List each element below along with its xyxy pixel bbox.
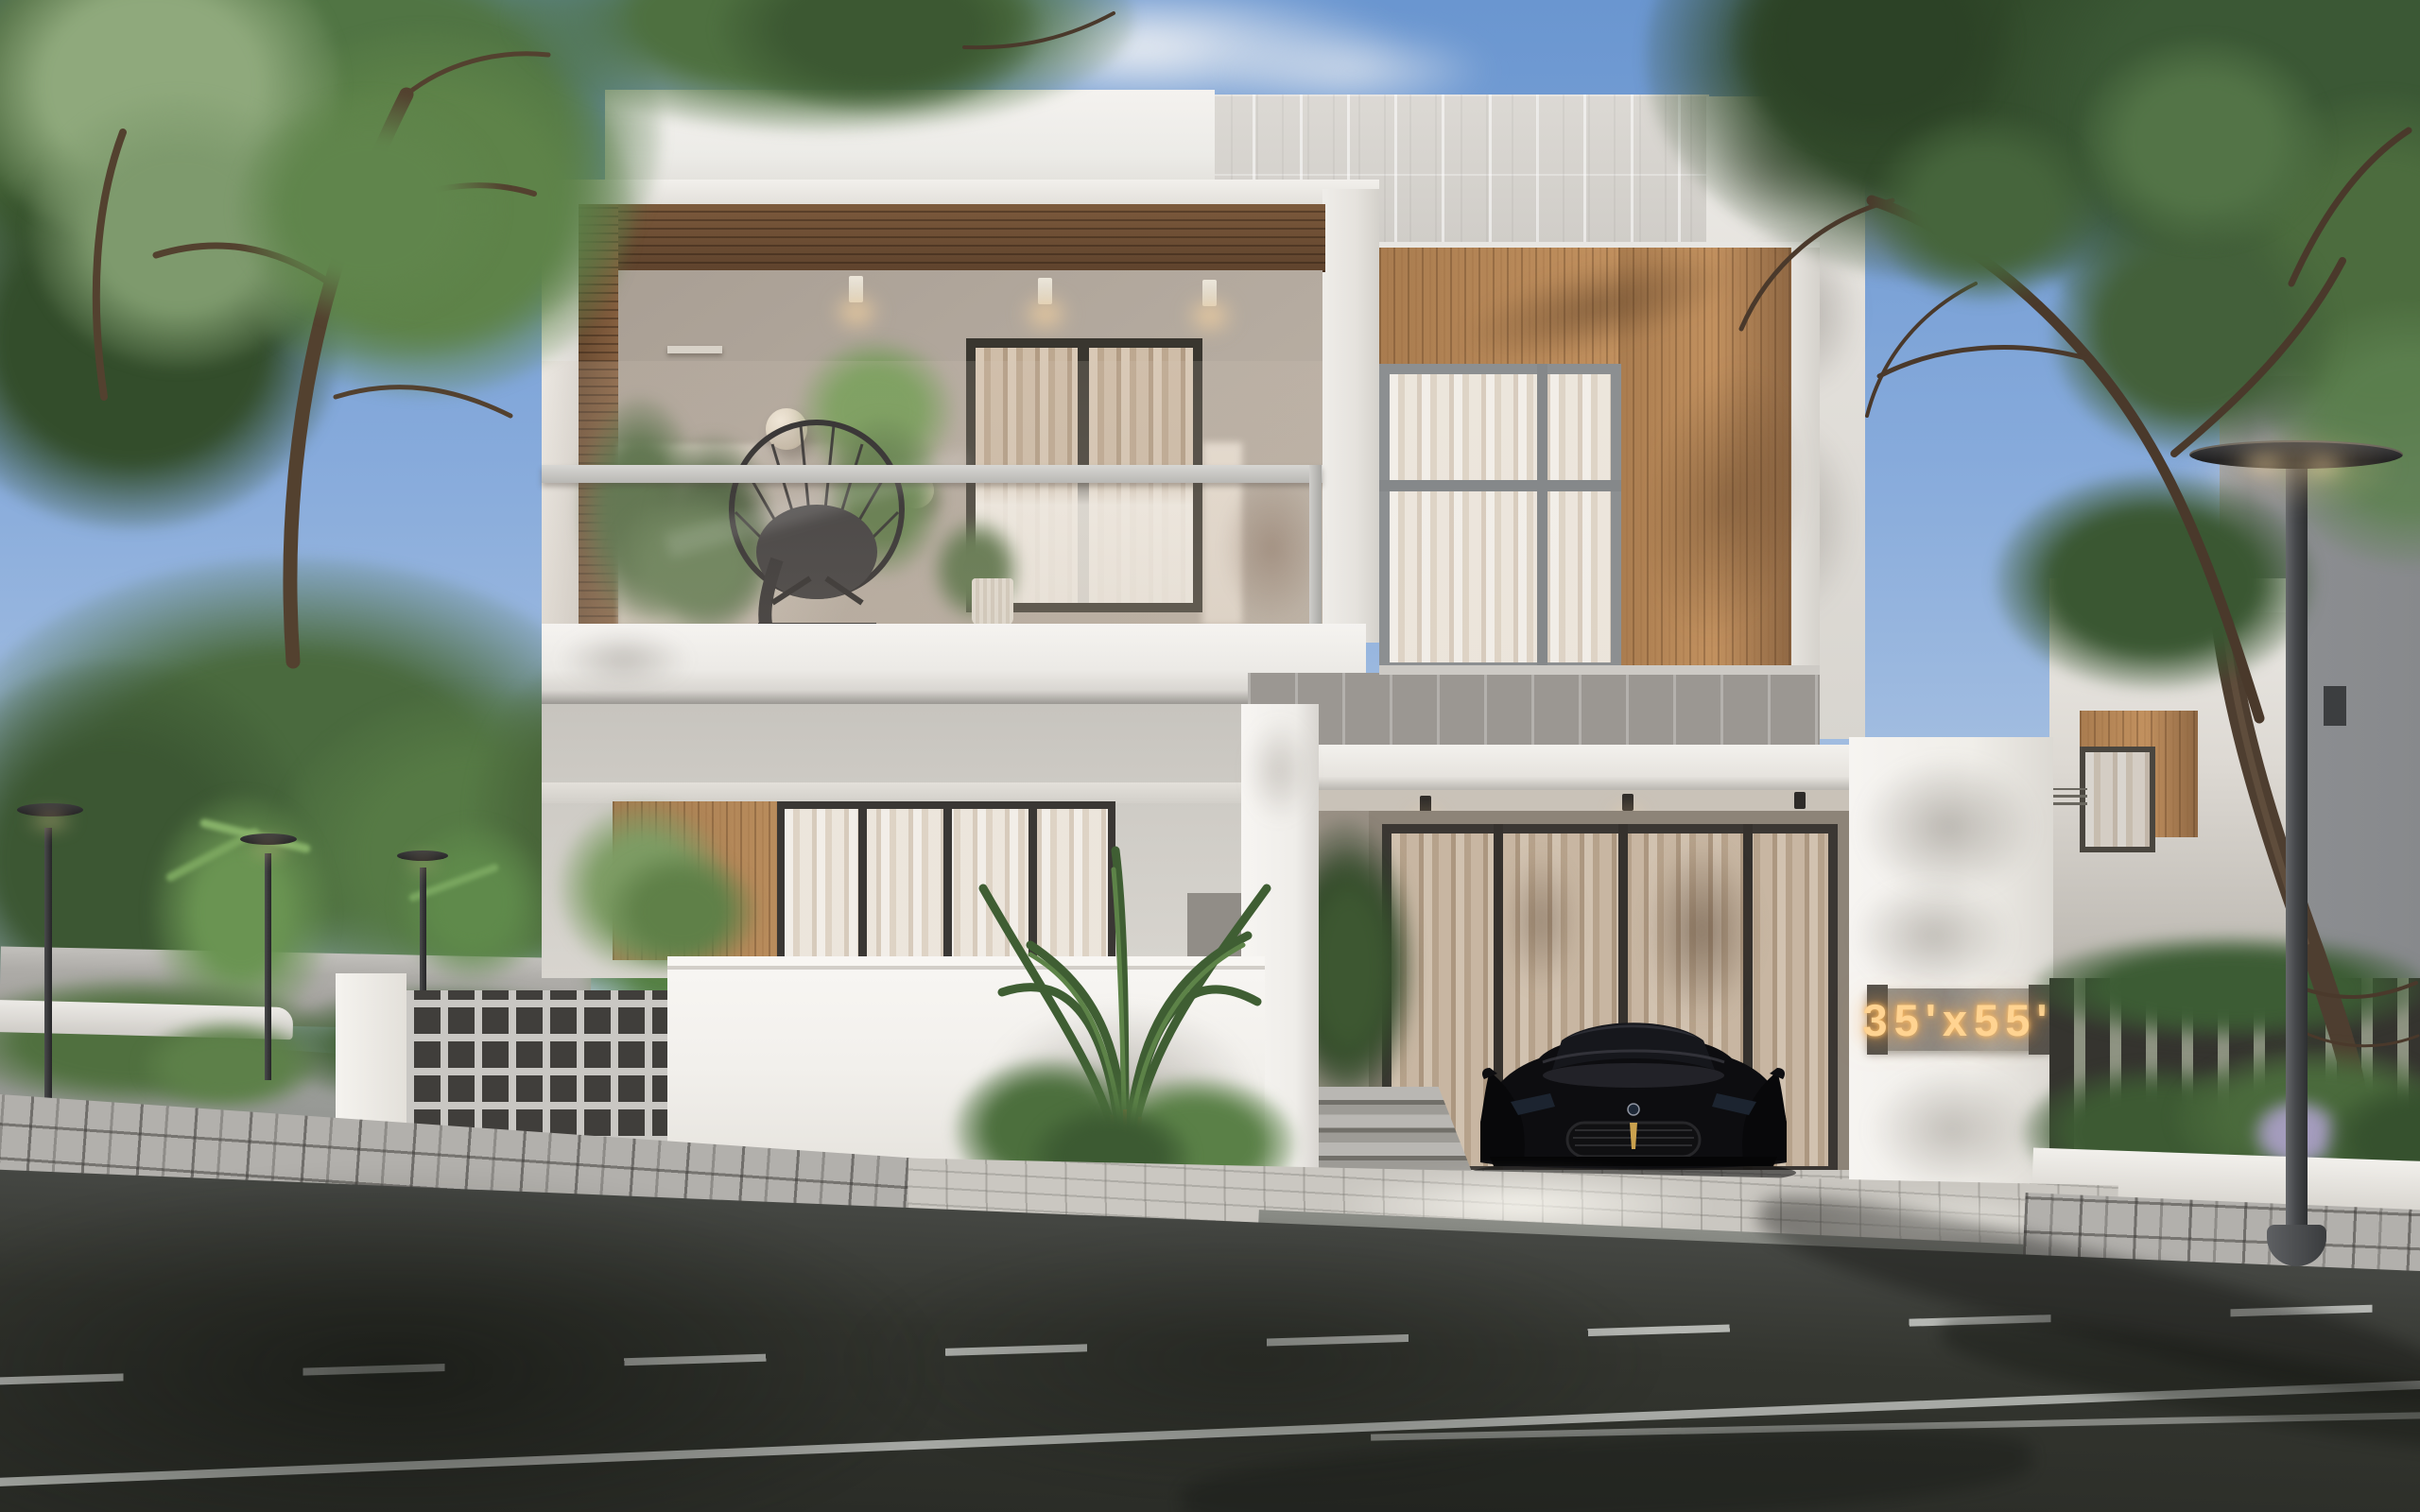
lamp-halo [2203,425,2401,510]
architectural-render-scene: 35'x55' [0,0,2420,1512]
leaf-cluster [2080,38,2325,246]
street-lamp-pole-right [2286,467,2308,1246]
leaf-cluster [1872,113,2099,302]
leaf-cluster [236,94,501,321]
